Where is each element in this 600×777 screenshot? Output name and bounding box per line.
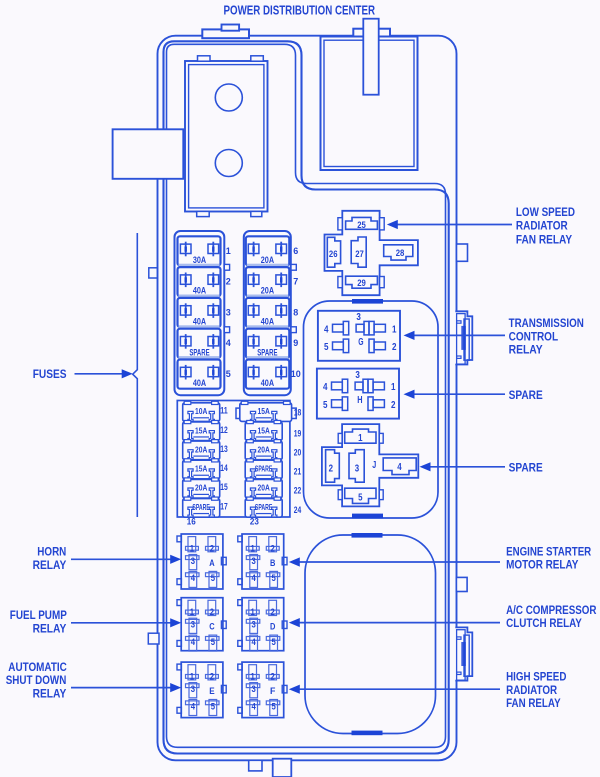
svg-text:1: 1 (190, 607, 195, 618)
svg-text:22: 22 (294, 486, 302, 496)
svg-text:16: 16 (187, 517, 196, 527)
svg-text:E: E (209, 686, 214, 697)
svg-text:24: 24 (294, 505, 302, 515)
svg-text:21: 21 (294, 467, 302, 477)
svg-text:3: 3 (252, 556, 256, 567)
svg-text:40A: 40A (261, 317, 275, 327)
svg-text:20A: 20A (261, 286, 275, 296)
svg-text:4: 4 (191, 637, 196, 648)
svg-text:5: 5 (323, 400, 328, 411)
svg-text:1: 1 (358, 433, 363, 444)
svg-text:4: 4 (252, 637, 257, 648)
svg-text:POWER DISTRIBUTION CENTER: POWER DISTRIBUTION CENTER (224, 4, 376, 18)
svg-text:2: 2 (329, 463, 334, 474)
svg-text:RELAY: RELAY (509, 343, 544, 357)
svg-text:10A: 10A (195, 407, 207, 416)
svg-text:SPARE: SPARE (192, 503, 210, 512)
svg-text:1: 1 (226, 246, 231, 256)
svg-text:5: 5 (272, 701, 277, 712)
svg-text:12: 12 (220, 425, 228, 435)
svg-text:5: 5 (272, 637, 277, 648)
svg-text:10: 10 (291, 369, 301, 379)
svg-text:9: 9 (293, 338, 298, 348)
svg-text:5: 5 (226, 369, 231, 379)
svg-text:15: 15 (220, 482, 228, 492)
svg-text:1: 1 (251, 607, 256, 618)
svg-text:LOW SPEED: LOW SPEED (516, 205, 575, 219)
svg-text:30A: 30A (193, 255, 207, 265)
svg-text:5: 5 (272, 573, 277, 584)
svg-text:18: 18 (294, 407, 302, 417)
svg-text:4: 4 (226, 338, 231, 348)
svg-text:28: 28 (396, 248, 405, 259)
svg-text:SHUT DOWN: SHUT DOWN (6, 673, 67, 687)
svg-text:2: 2 (271, 607, 275, 618)
svg-text:J: J (372, 460, 376, 471)
svg-text:2: 2 (210, 607, 214, 618)
svg-text:3: 3 (191, 620, 195, 631)
svg-text:1: 1 (190, 543, 195, 554)
svg-text:5: 5 (211, 701, 216, 712)
svg-text:FUSES: FUSES (33, 367, 67, 381)
svg-text:ENGINE STARTER: ENGINE STARTER (506, 544, 591, 558)
svg-text:5: 5 (324, 342, 329, 353)
svg-text:SPARE: SPARE (509, 461, 543, 475)
svg-text:20: 20 (294, 447, 302, 457)
svg-text:40A: 40A (193, 378, 207, 388)
svg-text:11: 11 (220, 406, 228, 416)
svg-text:2: 2 (226, 277, 231, 287)
svg-text:15A: 15A (258, 426, 270, 435)
svg-text:5: 5 (211, 637, 216, 648)
svg-text:17: 17 (220, 501, 228, 511)
svg-text:2: 2 (210, 671, 214, 682)
svg-text:1: 1 (251, 671, 256, 682)
svg-text:2: 2 (271, 543, 275, 554)
svg-text:TRANSMISSION: TRANSMISSION (509, 316, 584, 330)
svg-text:3: 3 (356, 312, 361, 323)
svg-text:40A: 40A (261, 378, 275, 388)
svg-text:SPARE: SPARE (255, 465, 273, 474)
svg-text:G: G (358, 337, 363, 348)
svg-text:4: 4 (191, 701, 196, 712)
svg-text:1: 1 (251, 543, 256, 554)
svg-text:AUTOMATIC: AUTOMATIC (8, 660, 67, 674)
svg-text:1: 1 (391, 382, 396, 393)
svg-text:C: C (209, 622, 214, 633)
svg-text:F: F (270, 686, 276, 697)
svg-text:40A: 40A (193, 317, 207, 327)
svg-text:3: 3 (355, 463, 360, 474)
svg-text:RELAY: RELAY (33, 687, 67, 701)
svg-text:4: 4 (323, 382, 328, 393)
svg-text:3: 3 (252, 684, 256, 695)
svg-text:SPARE: SPARE (509, 388, 543, 402)
svg-text:20A: 20A (195, 484, 207, 493)
svg-text:15A: 15A (195, 426, 207, 435)
svg-text:1: 1 (190, 671, 195, 682)
svg-text:RADIATOR: RADIATOR (506, 683, 557, 697)
svg-text:SPARE: SPARE (255, 503, 273, 512)
svg-text:14: 14 (220, 463, 228, 473)
svg-text:23: 23 (250, 517, 259, 527)
svg-text:3: 3 (191, 556, 195, 567)
svg-text:27: 27 (355, 249, 364, 260)
svg-text:CONTROL: CONTROL (509, 329, 559, 343)
svg-text:MOTOR RELAY: MOTOR RELAY (506, 558, 579, 572)
svg-text:3: 3 (355, 370, 360, 381)
svg-text:HORN: HORN (37, 544, 66, 558)
svg-text:HIGH SPEED: HIGH SPEED (506, 670, 566, 684)
svg-text:RELAY: RELAY (33, 621, 67, 635)
svg-text:FAN RELAY: FAN RELAY (516, 232, 573, 246)
svg-text:RELAY: RELAY (33, 558, 67, 572)
svg-text:3: 3 (226, 307, 231, 317)
svg-text:4: 4 (324, 324, 329, 335)
svg-text:A: A (209, 558, 214, 569)
svg-text:A/C COMPRESSOR: A/C COMPRESSOR (506, 603, 596, 617)
svg-text:H: H (357, 395, 362, 406)
svg-text:4: 4 (397, 462, 402, 473)
svg-text:3: 3 (252, 620, 256, 631)
svg-text:40A: 40A (193, 286, 207, 296)
svg-text:8: 8 (293, 307, 298, 317)
svg-text:7: 7 (293, 277, 298, 287)
svg-text:20A: 20A (195, 445, 207, 454)
svg-text:29: 29 (357, 278, 366, 289)
svg-text:20A: 20A (261, 255, 275, 265)
svg-text:20A: 20A (258, 445, 270, 454)
svg-text:2: 2 (210, 543, 214, 554)
svg-text:1: 1 (392, 324, 397, 335)
svg-text:20A: 20A (258, 484, 270, 493)
svg-text:SPARE: SPARE (257, 347, 277, 357)
svg-text:B: B (270, 558, 275, 569)
svg-text:FUEL PUMP: FUEL PUMP (10, 608, 67, 622)
svg-text:2: 2 (391, 400, 396, 411)
svg-text:4: 4 (191, 573, 196, 584)
svg-text:2: 2 (392, 342, 397, 353)
svg-text:D: D (270, 622, 275, 633)
svg-text:SPARE: SPARE (189, 347, 209, 357)
svg-text:15A: 15A (258, 407, 270, 416)
svg-text:RADIATOR: RADIATOR (516, 219, 568, 233)
svg-text:6: 6 (293, 246, 298, 256)
svg-text:4: 4 (252, 701, 257, 712)
svg-text:CLUTCH RELAY: CLUTCH RELAY (506, 616, 582, 630)
svg-text:15A: 15A (195, 465, 207, 474)
svg-text:2: 2 (271, 671, 275, 682)
svg-text:26: 26 (329, 249, 338, 260)
svg-text:13: 13 (220, 444, 228, 454)
svg-text:5: 5 (211, 573, 216, 584)
svg-text:25: 25 (357, 220, 366, 231)
svg-text:19: 19 (294, 428, 302, 438)
svg-text:5: 5 (358, 493, 363, 504)
svg-text:4: 4 (252, 573, 257, 584)
svg-text:FAN RELAY: FAN RELAY (506, 696, 561, 710)
svg-text:3: 3 (191, 684, 195, 695)
